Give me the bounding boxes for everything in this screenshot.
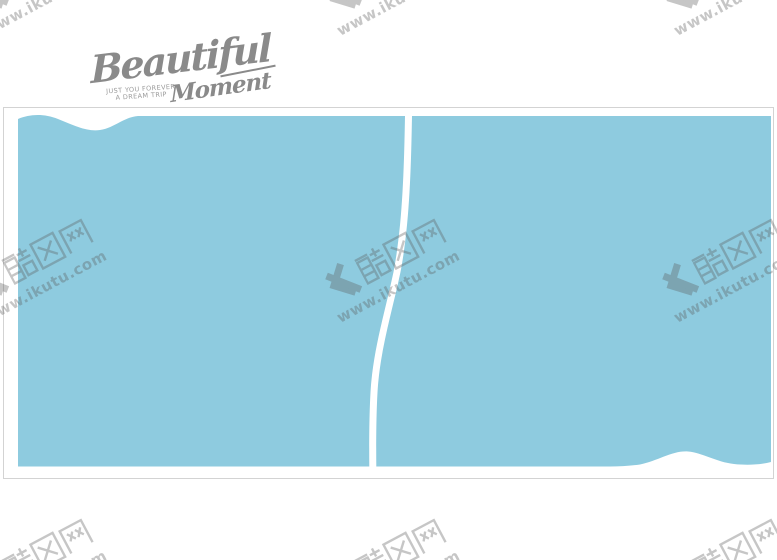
watermark-brand-row: 酷图网 (313, 501, 465, 560)
watermark-url: www.ikutu.com (334, 540, 475, 560)
watermark: 酷图网 www.ikutu.com (313, 501, 483, 560)
template-canvas (3, 107, 774, 479)
watermark-brand-row: 酷图网 (0, 501, 112, 560)
watermark: 酷图网 www.ikutu.com (650, 0, 777, 56)
kutu-logo-icon (314, 556, 366, 560)
beautiful-moment-logo: Beautiful Moment JUST YOU FOREVER A DREA… (88, 34, 298, 106)
watermark-url: www.ikutu.com (671, 0, 777, 40)
design-template-preview: Beautiful Moment JUST YOU FOREVER A DREA… (0, 0, 777, 560)
kutu-logo-icon (651, 556, 703, 560)
watermark-brand-row: 酷图网 (313, 0, 465, 22)
logo-caption: JUST YOU FOREVER A DREAM TRIP (104, 83, 179, 102)
watermark-brand-row: 酷图网 (0, 0, 112, 22)
watermark-url: www.ikutu.com (671, 540, 777, 560)
watermark: 酷图网 www.ikutu.com (313, 0, 483, 56)
kutu-brand-glyphs: 酷图网 (353, 514, 449, 560)
kutu-logo-icon (651, 0, 703, 22)
kutu-brand-glyphs: 酷图网 (0, 514, 96, 560)
kutu-logo-icon (0, 0, 13, 22)
kutu-logo-icon (314, 0, 366, 22)
watermark: 酷图网 www.ikutu.com (650, 501, 777, 560)
kutu-logo-icon (0, 556, 13, 560)
watermark-url: www.ikutu.com (334, 0, 475, 40)
watermark: 酷图网 www.ikutu.com (0, 501, 130, 560)
watermark-url: www.ikutu.com (0, 540, 122, 560)
watermark-brand-row: 酷图网 (650, 501, 777, 560)
kutu-brand-glyphs: 酷图网 (690, 514, 777, 560)
watermark-brand-row: 酷图网 (650, 0, 777, 22)
